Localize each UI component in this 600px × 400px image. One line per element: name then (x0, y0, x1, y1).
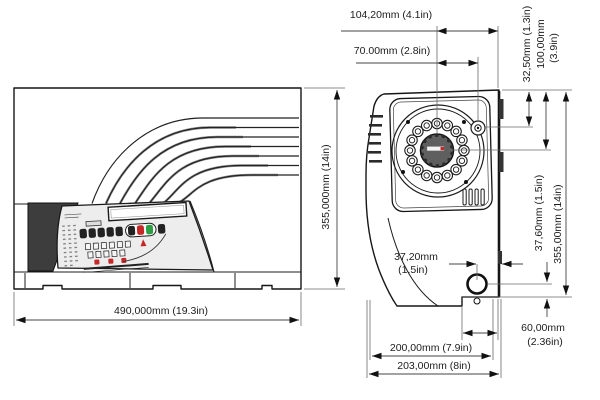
hub-to-rear-label: 104,20mm (4.1in) (350, 10, 432, 22)
plate-screw (401, 170, 405, 174)
front-view-group (14, 88, 301, 289)
plate-screw (464, 180, 468, 184)
cancel-button (137, 225, 145, 235)
hub-from-top-label-in: (3.9in) (549, 33, 561, 63)
front-width-label: 490,000mm (19.3in) (114, 306, 208, 318)
control-panel (57, 201, 213, 274)
stop-button (128, 226, 136, 236)
panel-red-icon (121, 258, 126, 263)
hub-to-port-label: 70.00mm (2.8in) (354, 46, 430, 58)
front-height-label: 355,000mm (14in) (321, 144, 333, 229)
panel-feed-key (86, 221, 101, 226)
technical-drawing-page: 490,000mm (19.3in) 355,000mm (14in) 104,… (0, 0, 600, 400)
port-from-top-label: 32,50mm (1.3in) (522, 6, 534, 82)
foot-width-label-in: (2.36in) (527, 337, 563, 349)
socket-from-rear-label-mm: 37,20mm (394, 252, 438, 264)
plate-screw (406, 120, 410, 124)
small-hole (474, 298, 480, 304)
swoosh-decoration (92, 118, 299, 204)
foot-width-label-mm: 60,00mm (521, 323, 565, 335)
socket-from-rear-label-in: (1.5in) (398, 265, 428, 277)
start-button (146, 225, 154, 235)
aux-port (471, 121, 485, 135)
body-depth-label: 200,00mm (7.9in) (390, 343, 472, 355)
vent-slats (368, 115, 383, 163)
dimension-drawing-canvas (0, 0, 600, 400)
side-height-label: 355,00mm (14in) (553, 184, 565, 263)
socket-from-bottom-label: 37,60mm (1.5in) (534, 175, 546, 251)
hub-from-top-label-mm: 100,00mm (536, 19, 548, 69)
total-depth-label: 203,00mm (8in) (397, 361, 471, 373)
plate-screw (462, 120, 466, 124)
hub-brand-red-mark (441, 147, 445, 150)
panel-red-icon (94, 259, 99, 264)
side-view-group (366, 90, 504, 306)
panel-red-icon (108, 259, 113, 264)
